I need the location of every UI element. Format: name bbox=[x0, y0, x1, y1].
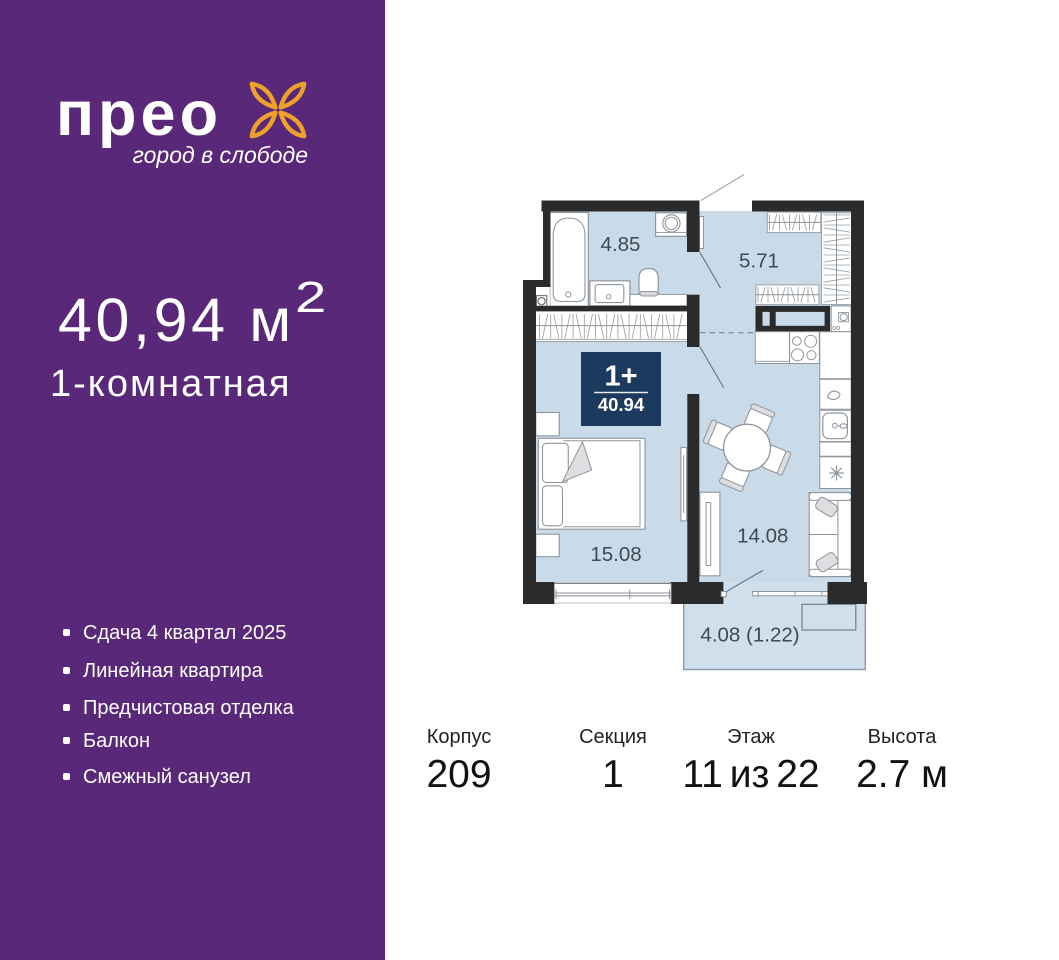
svg-text:40.94: 40.94 bbox=[598, 394, 645, 415]
svg-text:4.08 (1.22): 4.08 (1.22) bbox=[700, 624, 799, 647]
svg-text:5.71: 5.71 bbox=[739, 250, 779, 273]
svg-text:15.08: 15.08 bbox=[590, 543, 641, 566]
svg-text:14.08: 14.08 bbox=[737, 525, 788, 548]
svg-text:1+: 1+ bbox=[604, 361, 637, 393]
svg-text:4.85: 4.85 bbox=[601, 233, 641, 256]
